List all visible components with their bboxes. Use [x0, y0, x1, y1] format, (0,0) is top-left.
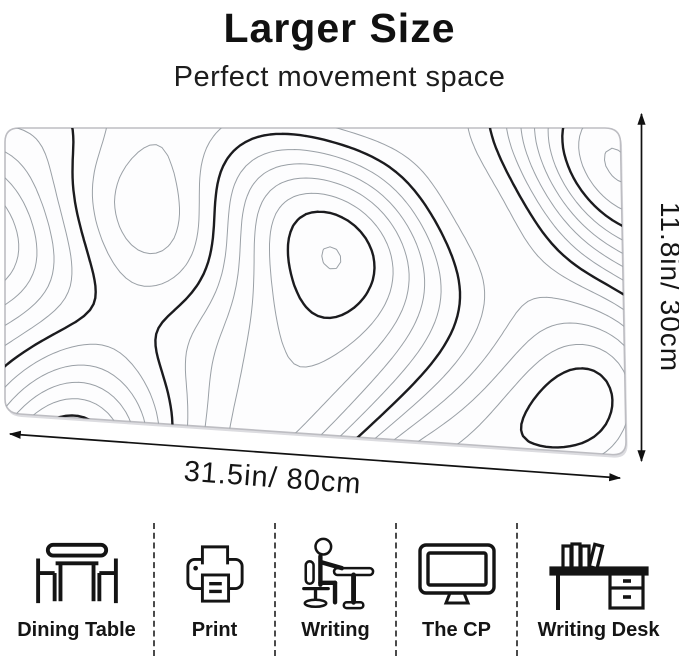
feature-row: Dining Table Print: [0, 523, 679, 656]
feature-label-dining-table: Dining Table: [17, 619, 136, 642]
page-subtitle: Perfect movement space: [0, 61, 679, 94]
writing-person-icon: [291, 534, 381, 614]
feature-label-writing: Writing: [301, 619, 370, 642]
feature-writing: Writing: [274, 523, 395, 656]
feature-writing-desk: Writing Desk: [516, 523, 679, 656]
writing-desk-icon: [549, 536, 649, 612]
dining-table-icon: [28, 539, 126, 609]
printer-icon: [184, 542, 246, 606]
height-dimension-label: 11.8in/ 30cm: [655, 202, 679, 372]
width-dimension-label: 31.5in/ 80cm: [183, 456, 363, 501]
page: { "header": { "title": "Larger Size", "s…: [0, 0, 679, 656]
page-title: Larger Size: [0, 5, 679, 52]
feature-the-cp: The CP: [395, 523, 516, 656]
feature-print: Print: [153, 523, 274, 656]
computer-icon: [417, 542, 497, 606]
feature-label-writing-desk: Writing Desk: [538, 619, 660, 642]
feature-dining-table: Dining Table: [0, 523, 153, 656]
header: Larger Size Perfect movement space: [0, 0, 679, 94]
feature-label-the-cp: The CP: [422, 619, 491, 642]
feature-label-print: Print: [192, 619, 238, 642]
